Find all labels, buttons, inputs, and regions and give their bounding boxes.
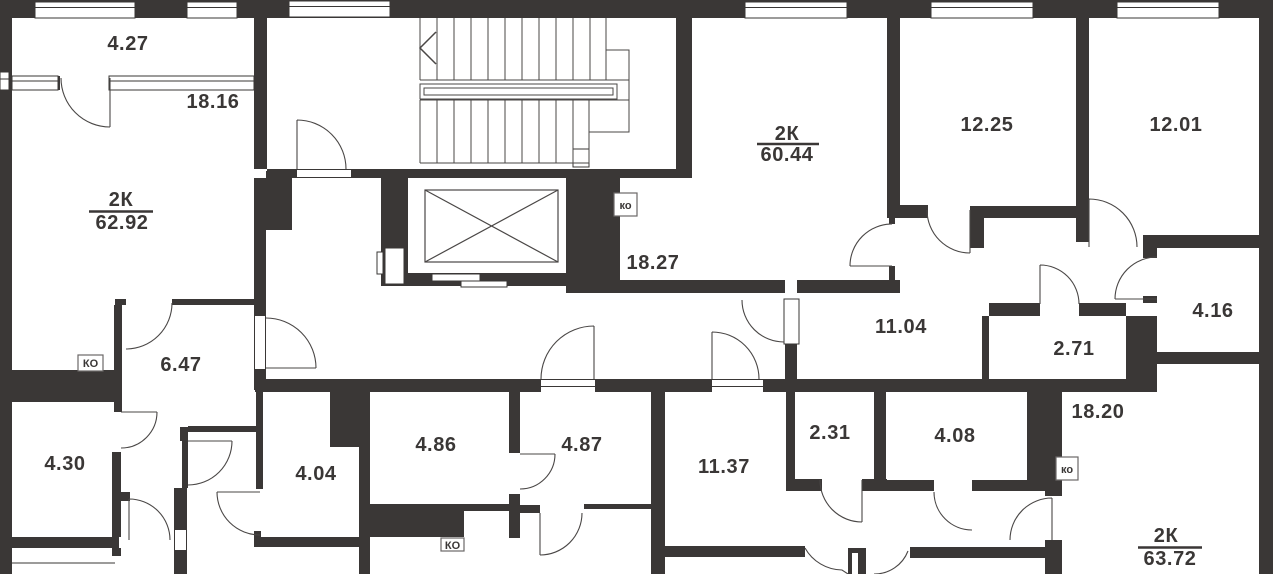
- svg-text:КО: КО: [445, 540, 461, 552]
- svg-text:ко: ко: [1061, 464, 1073, 476]
- svg-text:4.08: 4.08: [934, 425, 975, 447]
- svg-text:4.30: 4.30: [44, 453, 85, 475]
- svg-text:4.86: 4.86: [415, 434, 456, 456]
- svg-text:63.72: 63.72: [1143, 548, 1196, 570]
- svg-text:12.01: 12.01: [1149, 114, 1202, 136]
- svg-text:ко: ко: [619, 200, 631, 212]
- svg-text:62.92: 62.92: [95, 212, 148, 234]
- svg-text:2К: 2К: [109, 189, 134, 211]
- svg-text:60.44: 60.44: [760, 144, 813, 166]
- svg-text:4.27: 4.27: [107, 33, 148, 55]
- svg-text:2К: 2К: [1154, 525, 1179, 547]
- svg-text:18.20: 18.20: [1071, 401, 1124, 423]
- svg-text:КО: КО: [83, 358, 99, 370]
- svg-text:12.25: 12.25: [960, 114, 1013, 136]
- svg-text:2.31: 2.31: [809, 422, 850, 444]
- svg-text:11.37: 11.37: [698, 456, 750, 478]
- svg-text:18.27: 18.27: [626, 252, 679, 274]
- svg-text:4.16: 4.16: [1192, 300, 1233, 322]
- svg-text:11.04: 11.04: [875, 316, 927, 338]
- svg-text:6.47: 6.47: [160, 354, 201, 376]
- svg-text:2.71: 2.71: [1053, 338, 1094, 360]
- svg-text:2К: 2К: [775, 123, 800, 145]
- svg-text:18.16: 18.16: [186, 91, 239, 113]
- svg-text:4.04: 4.04: [295, 463, 337, 485]
- svg-text:4.87: 4.87: [561, 434, 602, 456]
